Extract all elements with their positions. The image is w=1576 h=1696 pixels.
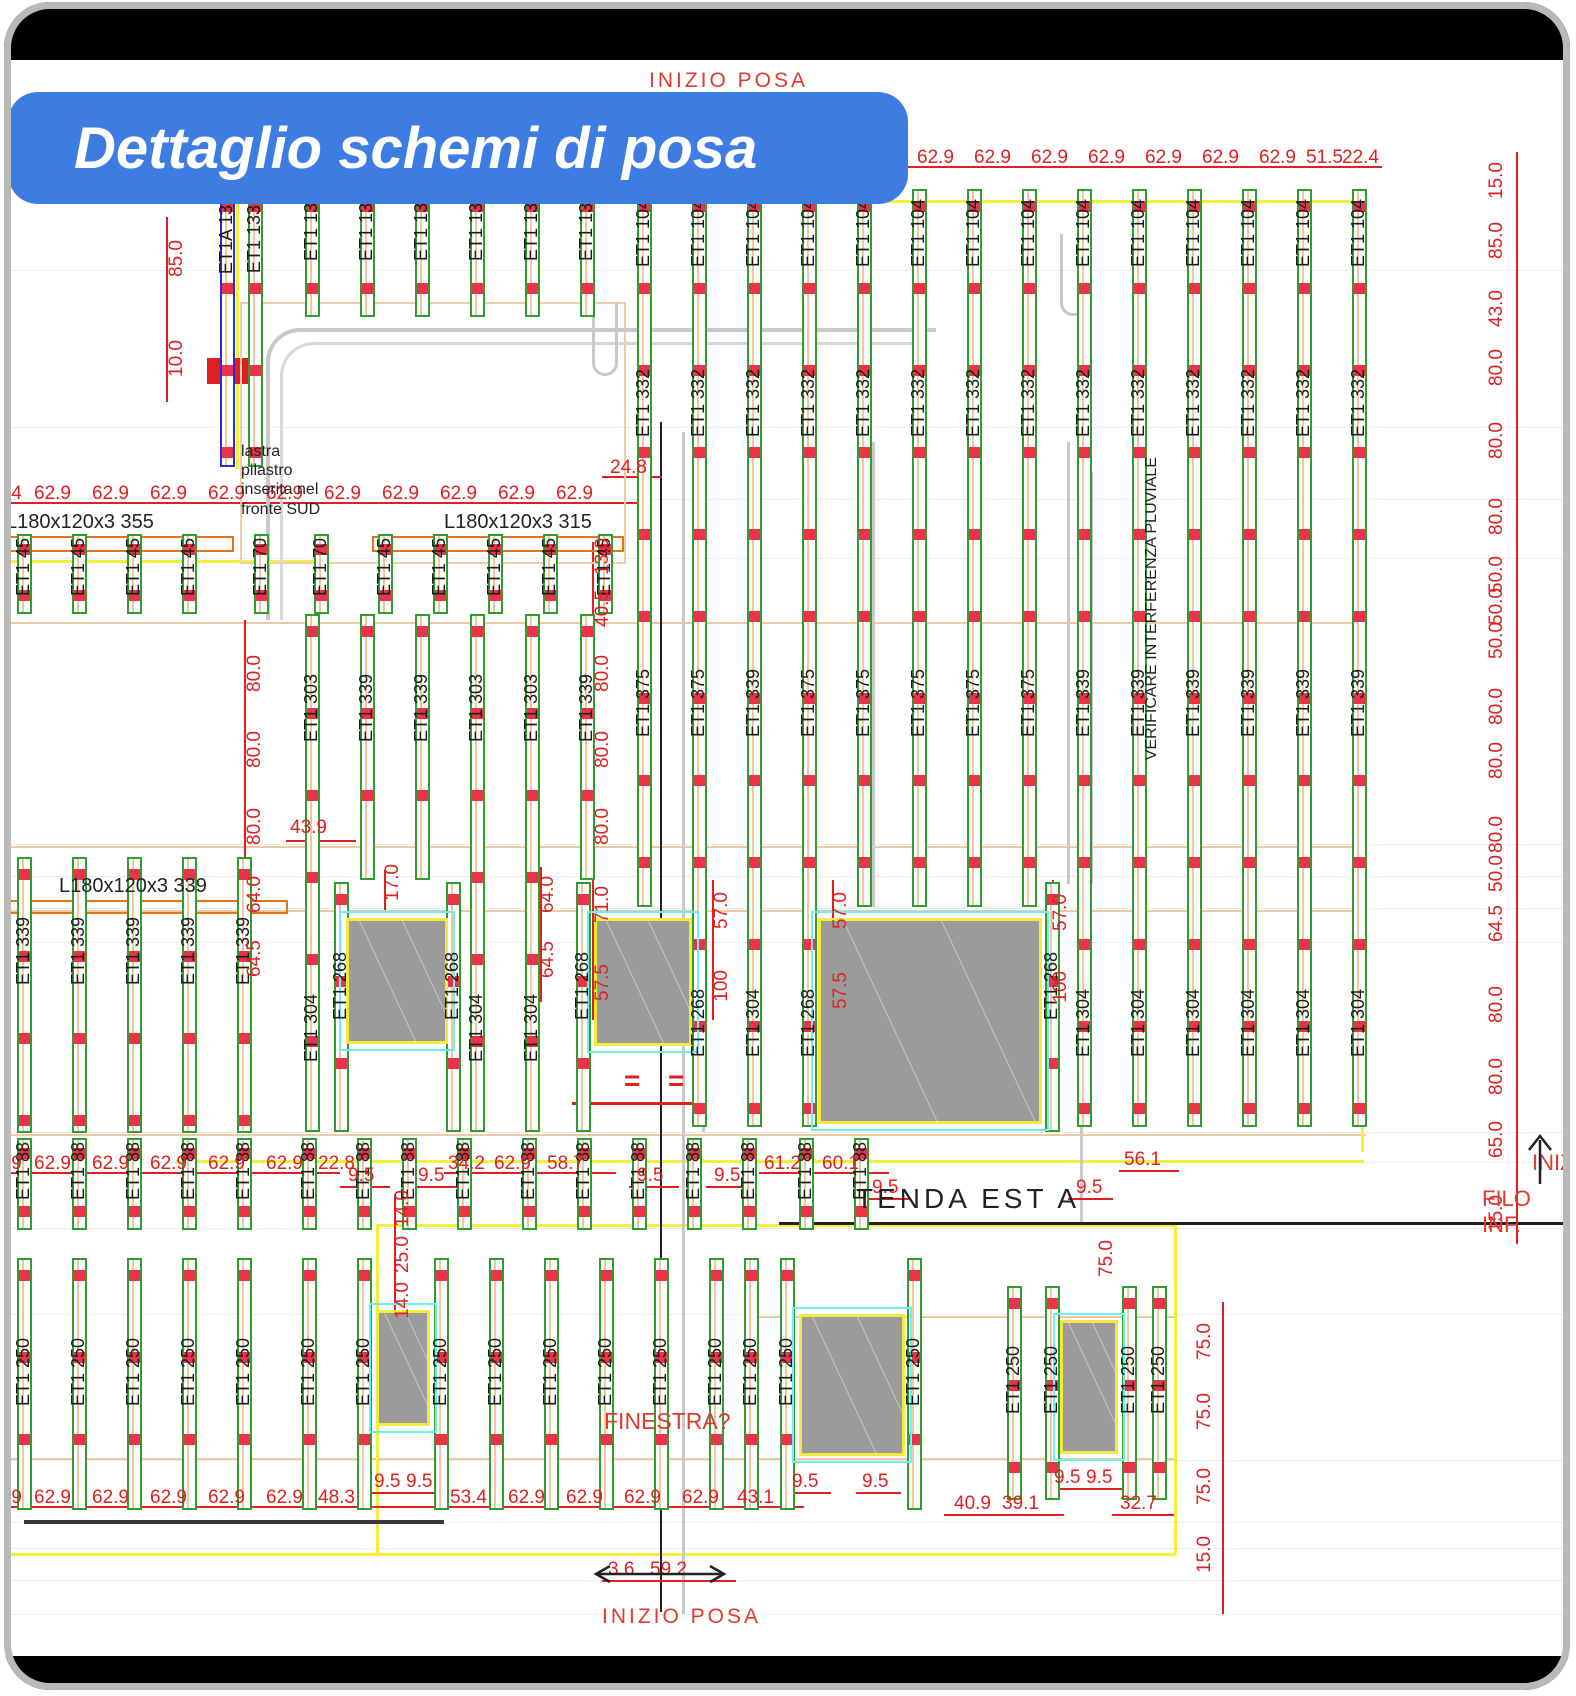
fixing-square — [1354, 1103, 1365, 1114]
window-glazing-line — [384, 1313, 430, 1426]
fixing-square — [74, 1434, 85, 1445]
fixing-square — [1299, 939, 1310, 950]
strip-label: ET1 268 — [573, 952, 591, 1020]
strip-label: ET1 104 — [1129, 199, 1147, 267]
fixing-square — [472, 626, 483, 637]
strip-label: ET1 250 — [124, 1338, 142, 1406]
fixing-square — [1024, 857, 1035, 868]
fixing-square — [1154, 1462, 1165, 1473]
fixing-square — [804, 283, 815, 294]
fixing-square — [472, 954, 483, 965]
fixing-square — [914, 447, 925, 458]
fixing-square — [1299, 447, 1310, 458]
dimension-label: 57.5 — [593, 964, 612, 1001]
strip-inner-line — [1137, 191, 1139, 1125]
strip-label: ET1 250 — [651, 1338, 669, 1406]
cad-drawing-stage: ET1A 133ET1 1330ET1 133ET1 133ET1 133ET1… — [4, 2, 1570, 1690]
strip-label: ET1 45 — [69, 538, 87, 596]
arrow-icon — [592, 1562, 728, 1586]
fixing-square — [601, 1270, 612, 1281]
strip-label: ET1 339 — [124, 917, 142, 985]
dimension-label: 100 — [712, 970, 731, 1002]
dimension-label: 80.0 — [245, 731, 264, 768]
dimension-label: 50.0 — [1487, 855, 1506, 892]
screenshot-page: ET1A 133ET1 1330ET1 133ET1 133ET1 133ET1… — [0, 0, 1576, 1696]
dimension-label: 62.9 — [508, 1488, 545, 1507]
fixing-square — [307, 954, 318, 965]
strip-label: ET1 268 — [331, 952, 349, 1020]
fixing-square — [804, 447, 815, 458]
drawing-outline — [592, 302, 618, 376]
fixing-square — [239, 1115, 250, 1126]
drawing-line — [4, 846, 1366, 848]
strip-label: ET1 104 — [854, 199, 872, 267]
strip-label: ET1 304 — [1294, 989, 1312, 1057]
strip-label: ET1 250 — [14, 1338, 32, 1406]
fixing-square — [782, 1270, 793, 1281]
dimension-label: 62.9 — [1259, 148, 1296, 167]
fixing-square — [859, 775, 870, 786]
profile-strip — [17, 857, 32, 1133]
strip-inner-line — [862, 191, 864, 905]
fixing-square — [914, 611, 925, 622]
strip-label: ET1 375 — [799, 669, 817, 737]
dimension-label: 50.0 — [1487, 622, 1506, 659]
fixing-square — [307, 790, 318, 801]
strip-label: ET1 375 — [854, 669, 872, 737]
dimension-label: 62.9 — [917, 148, 954, 167]
strip-label: ET1 304 — [1129, 989, 1147, 1057]
dimension-label: 62.9 — [624, 1488, 661, 1507]
fixing-square — [359, 1270, 370, 1281]
fixing-square — [1299, 1103, 1310, 1114]
fixing-square — [711, 1270, 722, 1281]
fixing-square — [527, 283, 538, 294]
fixing-square — [184, 1434, 195, 1445]
dimension-label: 15.0 — [1195, 1536, 1214, 1573]
dimension-label: 62.9 — [440, 484, 477, 503]
annotation-text: L180x120x3 315 — [444, 510, 592, 534]
dimension-label: 32.7 — [1120, 1494, 1157, 1513]
dimension-label: 9.5 — [714, 1166, 740, 1185]
drawing-card: ET1A 133ET1 1330ET1 133ET1 133ET1 133ET1… — [4, 2, 1570, 1690]
strip-label: ET1 104 — [1239, 199, 1257, 267]
strip-label: ET1 332 — [1294, 369, 1312, 437]
fixing-square — [417, 626, 428, 637]
fixing-square — [239, 1206, 250, 1217]
fixing-square — [1244, 857, 1255, 868]
fixing-square — [1024, 611, 1035, 622]
fixing-square — [1079, 447, 1090, 458]
fixing-square — [1189, 611, 1200, 622]
fixing-square — [546, 1434, 557, 1445]
strip-label: ET1 339 — [1074, 669, 1092, 737]
window-opening — [818, 918, 1042, 1124]
strip-label: ET1 332 — [1019, 369, 1037, 437]
strip-inner-line — [972, 191, 974, 905]
fixing-square — [336, 894, 347, 905]
fixing-square — [491, 1270, 502, 1281]
fixing-square — [304, 1434, 315, 1445]
fixing-square — [694, 529, 705, 540]
strip-label: ET1 304 — [1349, 989, 1367, 1057]
dimension-label: 62.9 — [150, 1154, 187, 1173]
window-opening — [376, 1310, 430, 1426]
fixing-square — [527, 790, 538, 801]
fixing-square — [859, 447, 870, 458]
strip-label: ET1 339 — [1294, 669, 1312, 737]
profile-strip — [912, 189, 927, 907]
fixing-square — [222, 447, 233, 458]
strip-label: ET1 250 — [1119, 1346, 1137, 1414]
fixing-square — [1244, 1103, 1255, 1114]
fixing-square — [19, 1115, 30, 1126]
strip-inner-line — [917, 191, 919, 905]
strip-inner-line — [642, 191, 644, 905]
dimension-label: 62.9 — [974, 148, 1011, 167]
dimension-label: 43.9 — [290, 818, 327, 837]
fixing-square — [969, 611, 980, 622]
fixing-square — [1299, 611, 1310, 622]
fixing-square — [1189, 283, 1200, 294]
fixing-square — [74, 1206, 85, 1217]
dimension-label: 62.9 — [494, 1154, 531, 1173]
strip-label: ET1 332 — [1074, 369, 1092, 437]
dimension-label: 9.5 — [792, 1472, 818, 1491]
strip-label: ET1 332 — [854, 369, 872, 437]
strip-label: ET1 375 — [964, 669, 982, 737]
fixing-square — [1189, 529, 1200, 540]
dimension-label: 62.9 — [1202, 148, 1239, 167]
fixing-square — [1024, 529, 1035, 540]
drawing-line — [4, 1134, 1366, 1136]
fixing-square — [1244, 529, 1255, 540]
fixing-square — [74, 1115, 85, 1126]
dimension-label: 85.0 — [1487, 222, 1506, 259]
fixing-square — [749, 1103, 760, 1114]
window-glazing-line — [359, 921, 431, 1044]
dimension-label: 40.9 — [954, 1494, 991, 1513]
dimension-label: 62.9 — [266, 1154, 303, 1173]
strip-label: ET1 104 — [744, 199, 762, 267]
strip-label: ET1 250 — [541, 1338, 559, 1406]
fixing-square — [1134, 939, 1145, 950]
drawing-line — [1174, 1224, 1177, 1555]
fixing-square — [1354, 775, 1365, 786]
fixing-square — [336, 1058, 347, 1069]
annotation-text: L180x120x3 355 — [6, 510, 154, 534]
fixing-square — [859, 611, 870, 622]
profile-strip — [637, 189, 652, 907]
strip-label: ET1 332 — [744, 369, 762, 437]
strip-label: ET1 375 — [1019, 669, 1037, 737]
fixing-square — [1244, 611, 1255, 622]
strip-inner-line — [187, 859, 189, 1131]
fixing-square — [472, 872, 483, 883]
dimension-label: 62.9 — [150, 484, 187, 503]
fixing-square — [1009, 1298, 1020, 1309]
fixing-square — [579, 1206, 590, 1217]
strip-label: ET1 303 — [522, 674, 540, 742]
drawing-line — [1222, 1302, 1224, 1614]
strip-label: ET1 332 — [689, 369, 707, 437]
profile-strip — [857, 189, 872, 907]
fixing-square — [304, 1206, 315, 1217]
fixing-square — [804, 775, 815, 786]
fixing-square — [1244, 775, 1255, 786]
strip-label: ET1 339 — [412, 674, 430, 742]
fixing-square — [1079, 775, 1090, 786]
dimension-label: .9 — [6, 1154, 22, 1173]
dimension-label: 80.0 — [1487, 816, 1506, 853]
dimension-label: 80.0 — [593, 731, 612, 768]
fixing-square — [914, 857, 925, 868]
strip-label: ET1 250 — [179, 1338, 197, 1406]
fixing-square — [909, 1270, 920, 1281]
fixing-square — [184, 1206, 195, 1217]
fixing-square — [448, 894, 459, 905]
annotation-text: TENDA EST A — [856, 1182, 1080, 1216]
fixing-square — [1079, 611, 1090, 622]
fixing-square — [1189, 939, 1200, 950]
strip-label: ET1 332 — [1184, 369, 1202, 437]
dimension-label: 64.5 — [538, 941, 557, 978]
drawing-outline — [4, 536, 234, 552]
fixing-square — [239, 1270, 250, 1281]
strip-label: ET1 104 — [1184, 199, 1202, 267]
fixing-square — [19, 1206, 30, 1217]
fixing-square — [639, 857, 650, 868]
fixing-square — [527, 626, 538, 637]
fixing-square — [694, 611, 705, 622]
strip-label: ET1 104 — [1349, 199, 1367, 267]
fixing-square — [1189, 775, 1200, 786]
fixing-square — [749, 775, 760, 786]
fixing-square — [1134, 283, 1145, 294]
fixing-square — [914, 775, 925, 786]
dimension-label: 34.2 — [448, 1154, 485, 1173]
strip-label: ET1 45 — [485, 538, 503, 596]
strip-label: ET1 45 — [540, 538, 558, 596]
fixing-square — [578, 1058, 589, 1069]
strip-label: ET1 303 — [302, 674, 320, 742]
strip-label: ET1 268 — [799, 989, 817, 1057]
strip-inner-line — [807, 191, 809, 1125]
dimension-label: .4 — [6, 484, 22, 503]
dimension-label: 62.9 — [682, 1488, 719, 1507]
profile-strip — [127, 857, 142, 1133]
fixing-square — [1024, 283, 1035, 294]
fixing-square — [1024, 775, 1035, 786]
dimension-label: 62.9 — [34, 1154, 71, 1173]
fixing-square — [1189, 1103, 1200, 1114]
fixing-square — [129, 1115, 140, 1126]
annotation-text: VERIFICARE INTERFERENZA PLUVIALE — [1142, 457, 1161, 760]
dimension-label: 80.0 — [1487, 1058, 1506, 1095]
window-glazing-line — [812, 1317, 893, 1456]
strip-label: ET1 304 — [1184, 989, 1202, 1057]
dimension-label: 62.9 — [1031, 148, 1068, 167]
dimension-label: 75.0 — [1195, 1393, 1214, 1430]
drawing-line — [1080, 1127, 1083, 1224]
drawing-line — [944, 1514, 1064, 1516]
dimension-label: 24.8 — [610, 458, 647, 477]
strip-inner-line — [77, 859, 79, 1131]
fixing-square — [634, 1206, 645, 1217]
strip-label: ET1 104 — [1074, 199, 1092, 267]
drawing-line — [856, 1492, 901, 1494]
fixing-square — [1024, 447, 1035, 458]
dimension-label: 9.5 — [374, 1472, 400, 1491]
strip-label: ET1 250 — [777, 1338, 795, 1406]
fixing-square — [1244, 447, 1255, 458]
fixing-square — [239, 1033, 250, 1044]
fixing-square — [1354, 939, 1365, 950]
strip-label: ET1 332 — [1129, 369, 1147, 437]
annotation-text: FINESTRA? — [604, 1408, 731, 1436]
profile-strip — [747, 189, 762, 1127]
dimension-label: 62.9 — [1145, 148, 1182, 167]
strip-label: ET1 104 — [799, 199, 817, 267]
dimension-label: 9.5 — [1086, 1468, 1112, 1487]
strip-label: ET1 339 — [69, 917, 87, 985]
fixing-square — [582, 626, 593, 637]
fixing-square — [546, 1270, 557, 1281]
fixing-square — [1354, 611, 1365, 622]
window-opening — [1060, 1320, 1118, 1454]
fixing-square — [1009, 1462, 1020, 1473]
strip-label: ET1 339 — [357, 674, 375, 742]
fixing-square — [491, 1434, 502, 1445]
strip-label: ET1 250 — [1004, 1346, 1022, 1414]
fixing-square — [524, 1206, 535, 1217]
fixing-square — [239, 1434, 250, 1445]
fixing-square — [129, 1206, 140, 1217]
strip-label: ET1 45 — [430, 538, 448, 596]
fixing-square — [744, 1206, 755, 1217]
strip-label: ET1 88 — [739, 1142, 757, 1200]
fixing-square — [1047, 1298, 1058, 1309]
profile-strip — [967, 189, 982, 907]
strip-label: ET1 250 — [354, 1338, 372, 1406]
fixing-square — [19, 1270, 30, 1281]
profile-strip — [415, 614, 430, 880]
profile-strip — [1352, 189, 1367, 1127]
dimension-label: 64.0 — [245, 876, 264, 913]
fixing-square — [472, 283, 483, 294]
strip-label: ET1 250 — [1149, 1346, 1167, 1414]
strip-inner-line — [132, 859, 134, 1131]
strip-label: ET1 250 — [706, 1338, 724, 1406]
strip-label: ET1 375 — [689, 669, 707, 737]
fixing-square — [1189, 857, 1200, 868]
strip-inner-line — [22, 859, 24, 1131]
strip-label: ET1 304 — [467, 994, 485, 1062]
fixing-square — [1299, 529, 1310, 540]
fixing-square — [804, 611, 815, 622]
double-arrow-icon — [592, 1562, 728, 1586]
fixing-square — [694, 775, 705, 786]
annotation-text: lastra pilastro inserita nel fronte SUD — [241, 442, 320, 519]
fixing-square — [1134, 775, 1145, 786]
title-banner: Dettaglio schemi di posa — [8, 92, 908, 204]
fixing-square — [129, 1270, 140, 1281]
strip-inner-line — [1027, 191, 1029, 905]
strip-label: ET1 304 — [302, 994, 320, 1062]
dimension-label: 62.9 — [92, 1154, 129, 1173]
dimension-label: 15.0 — [1487, 162, 1506, 199]
profile-strip — [72, 857, 87, 1133]
fixing-square — [749, 529, 760, 540]
strip-label: ET1A 133 — [217, 195, 235, 274]
page-title: Dettaglio schemi di posa — [8, 115, 757, 182]
dimension-label: 75.0 — [1195, 1323, 1214, 1360]
strip-label: ET1 88 — [69, 1142, 87, 1200]
dimension-label: 57.5 — [831, 972, 850, 1009]
strip-inner-line — [420, 616, 422, 878]
fixing-square — [804, 529, 815, 540]
strip-label: ET1 332 — [634, 369, 652, 437]
strip-label: ET1 375 — [909, 669, 927, 737]
fixing-square — [1244, 939, 1255, 950]
fixing-square — [1354, 857, 1365, 868]
drawing-line — [1516, 152, 1518, 1244]
fixing-square — [639, 283, 650, 294]
strip-label: ET1 332 — [964, 369, 982, 437]
dimension-label: 80.0 — [1487, 986, 1506, 1023]
strip-inner-line — [1192, 191, 1194, 1125]
strip-label: ET1 250 — [234, 1338, 252, 1406]
dimension-label: 85.0 — [167, 240, 186, 277]
dimension-label: 100 — [1051, 971, 1070, 1003]
dimension-label: 62.9 — [208, 484, 245, 503]
window-opening — [346, 918, 448, 1044]
strip-label: ET1 375 — [634, 669, 652, 737]
dimension-label: 22.4 — [1342, 148, 1379, 167]
strip-label: ET1 45 — [14, 538, 32, 596]
dimension-label: 62.9 — [266, 1488, 303, 1507]
fixing-square — [307, 626, 318, 637]
strip-label: ET1 339 — [1239, 669, 1257, 737]
fixing-square — [129, 1434, 140, 1445]
fixing-square — [749, 857, 760, 868]
fixing-square — [362, 283, 373, 294]
fixing-square — [969, 775, 980, 786]
dimension-label: 80.0 — [1487, 422, 1506, 459]
strip-label: ET1 304 — [744, 989, 762, 1057]
fixing-square — [459, 1206, 470, 1217]
strip-label: ET1 304 — [1239, 989, 1257, 1057]
strip-inner-line — [1302, 191, 1304, 1125]
fixing-square — [1134, 857, 1145, 868]
guide-line — [4, 1614, 1570, 1615]
fixing-square — [184, 1033, 195, 1044]
dimension-label: 9.5 — [418, 1166, 444, 1185]
dimension-label: 80.0 — [245, 655, 264, 692]
strip-inner-line — [1082, 191, 1084, 1125]
fixing-square — [804, 857, 815, 868]
profile-strip — [1297, 189, 1312, 1127]
strip-label: ET1 339 — [179, 917, 197, 985]
fixing-square — [19, 1033, 30, 1044]
fixing-square — [362, 626, 373, 637]
profile-strip — [1187, 189, 1202, 1127]
strip-inner-line — [1357, 191, 1359, 1125]
strip-label: ET1 250 — [431, 1338, 449, 1406]
fixing-square — [1079, 939, 1090, 950]
dimension-label: 9.5 — [406, 1472, 432, 1491]
dimension-label: 51.5 — [1306, 148, 1343, 167]
